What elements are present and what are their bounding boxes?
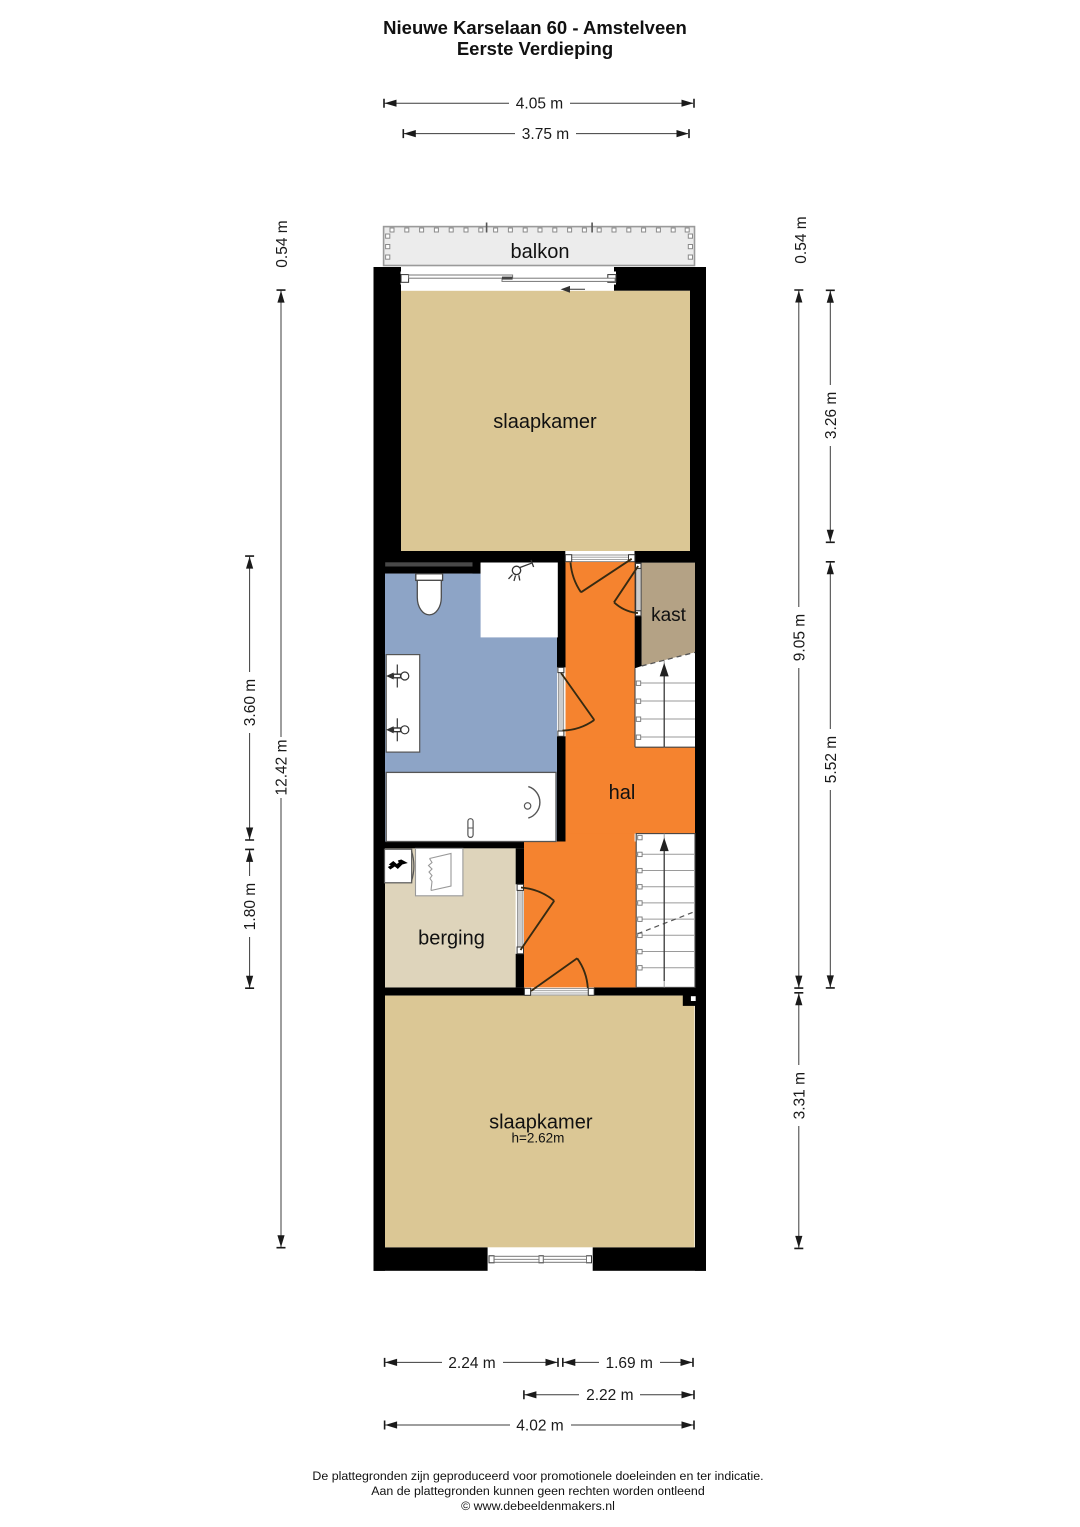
svg-text:Nieuwe Karselaan 60 - Amstelve: Nieuwe Karselaan 60 - Amstelveen: [383, 17, 687, 38]
svg-text:3.26 m: 3.26 m: [823, 392, 840, 439]
svg-text:1.69 m: 1.69 m: [606, 1355, 653, 1372]
svg-text:4.05 m: 4.05 m: [516, 96, 563, 113]
svg-text:2.24 m: 2.24 m: [448, 1355, 495, 1372]
svg-text:3.60 m: 3.60 m: [242, 679, 259, 726]
svg-text:Eerste Verdieping: Eerste Verdieping: [457, 38, 613, 59]
svg-text:9.05 m: 9.05 m: [791, 614, 808, 661]
svg-text:balkon: balkon: [511, 241, 570, 263]
svg-text:0.54 m: 0.54 m: [274, 220, 291, 267]
svg-text:3.31 m: 3.31 m: [791, 1072, 808, 1119]
svg-text:kast: kast: [651, 605, 687, 626]
svg-text:h=2.62m: h=2.62m: [511, 1131, 564, 1146]
svg-text:slaapkamer: slaapkamer: [493, 411, 597, 433]
svg-text:© www.debeeldenmakers.nl: © www.debeeldenmakers.nl: [461, 1499, 615, 1513]
svg-text:3.75 m: 3.75 m: [522, 126, 569, 143]
svg-text:berging: berging: [418, 928, 485, 950]
svg-text:4.02 m: 4.02 m: [516, 1417, 563, 1434]
svg-text:0.54 m: 0.54 m: [793, 216, 810, 263]
svg-text:12.42 m: 12.42 m: [274, 739, 291, 795]
svg-text:5.52 m: 5.52 m: [823, 736, 840, 783]
svg-text:2.22 m: 2.22 m: [586, 1387, 633, 1404]
svg-text:hal: hal: [609, 782, 636, 804]
svg-text:Aan de plattegronden kunnen ge: Aan de plattegronden kunnen geen rechten…: [371, 1484, 705, 1498]
svg-text:1.80 m: 1.80 m: [242, 883, 259, 930]
svg-text:De plattegronden zijn geproduc: De plattegronden zijn geproduceerd voor …: [312, 1469, 763, 1483]
